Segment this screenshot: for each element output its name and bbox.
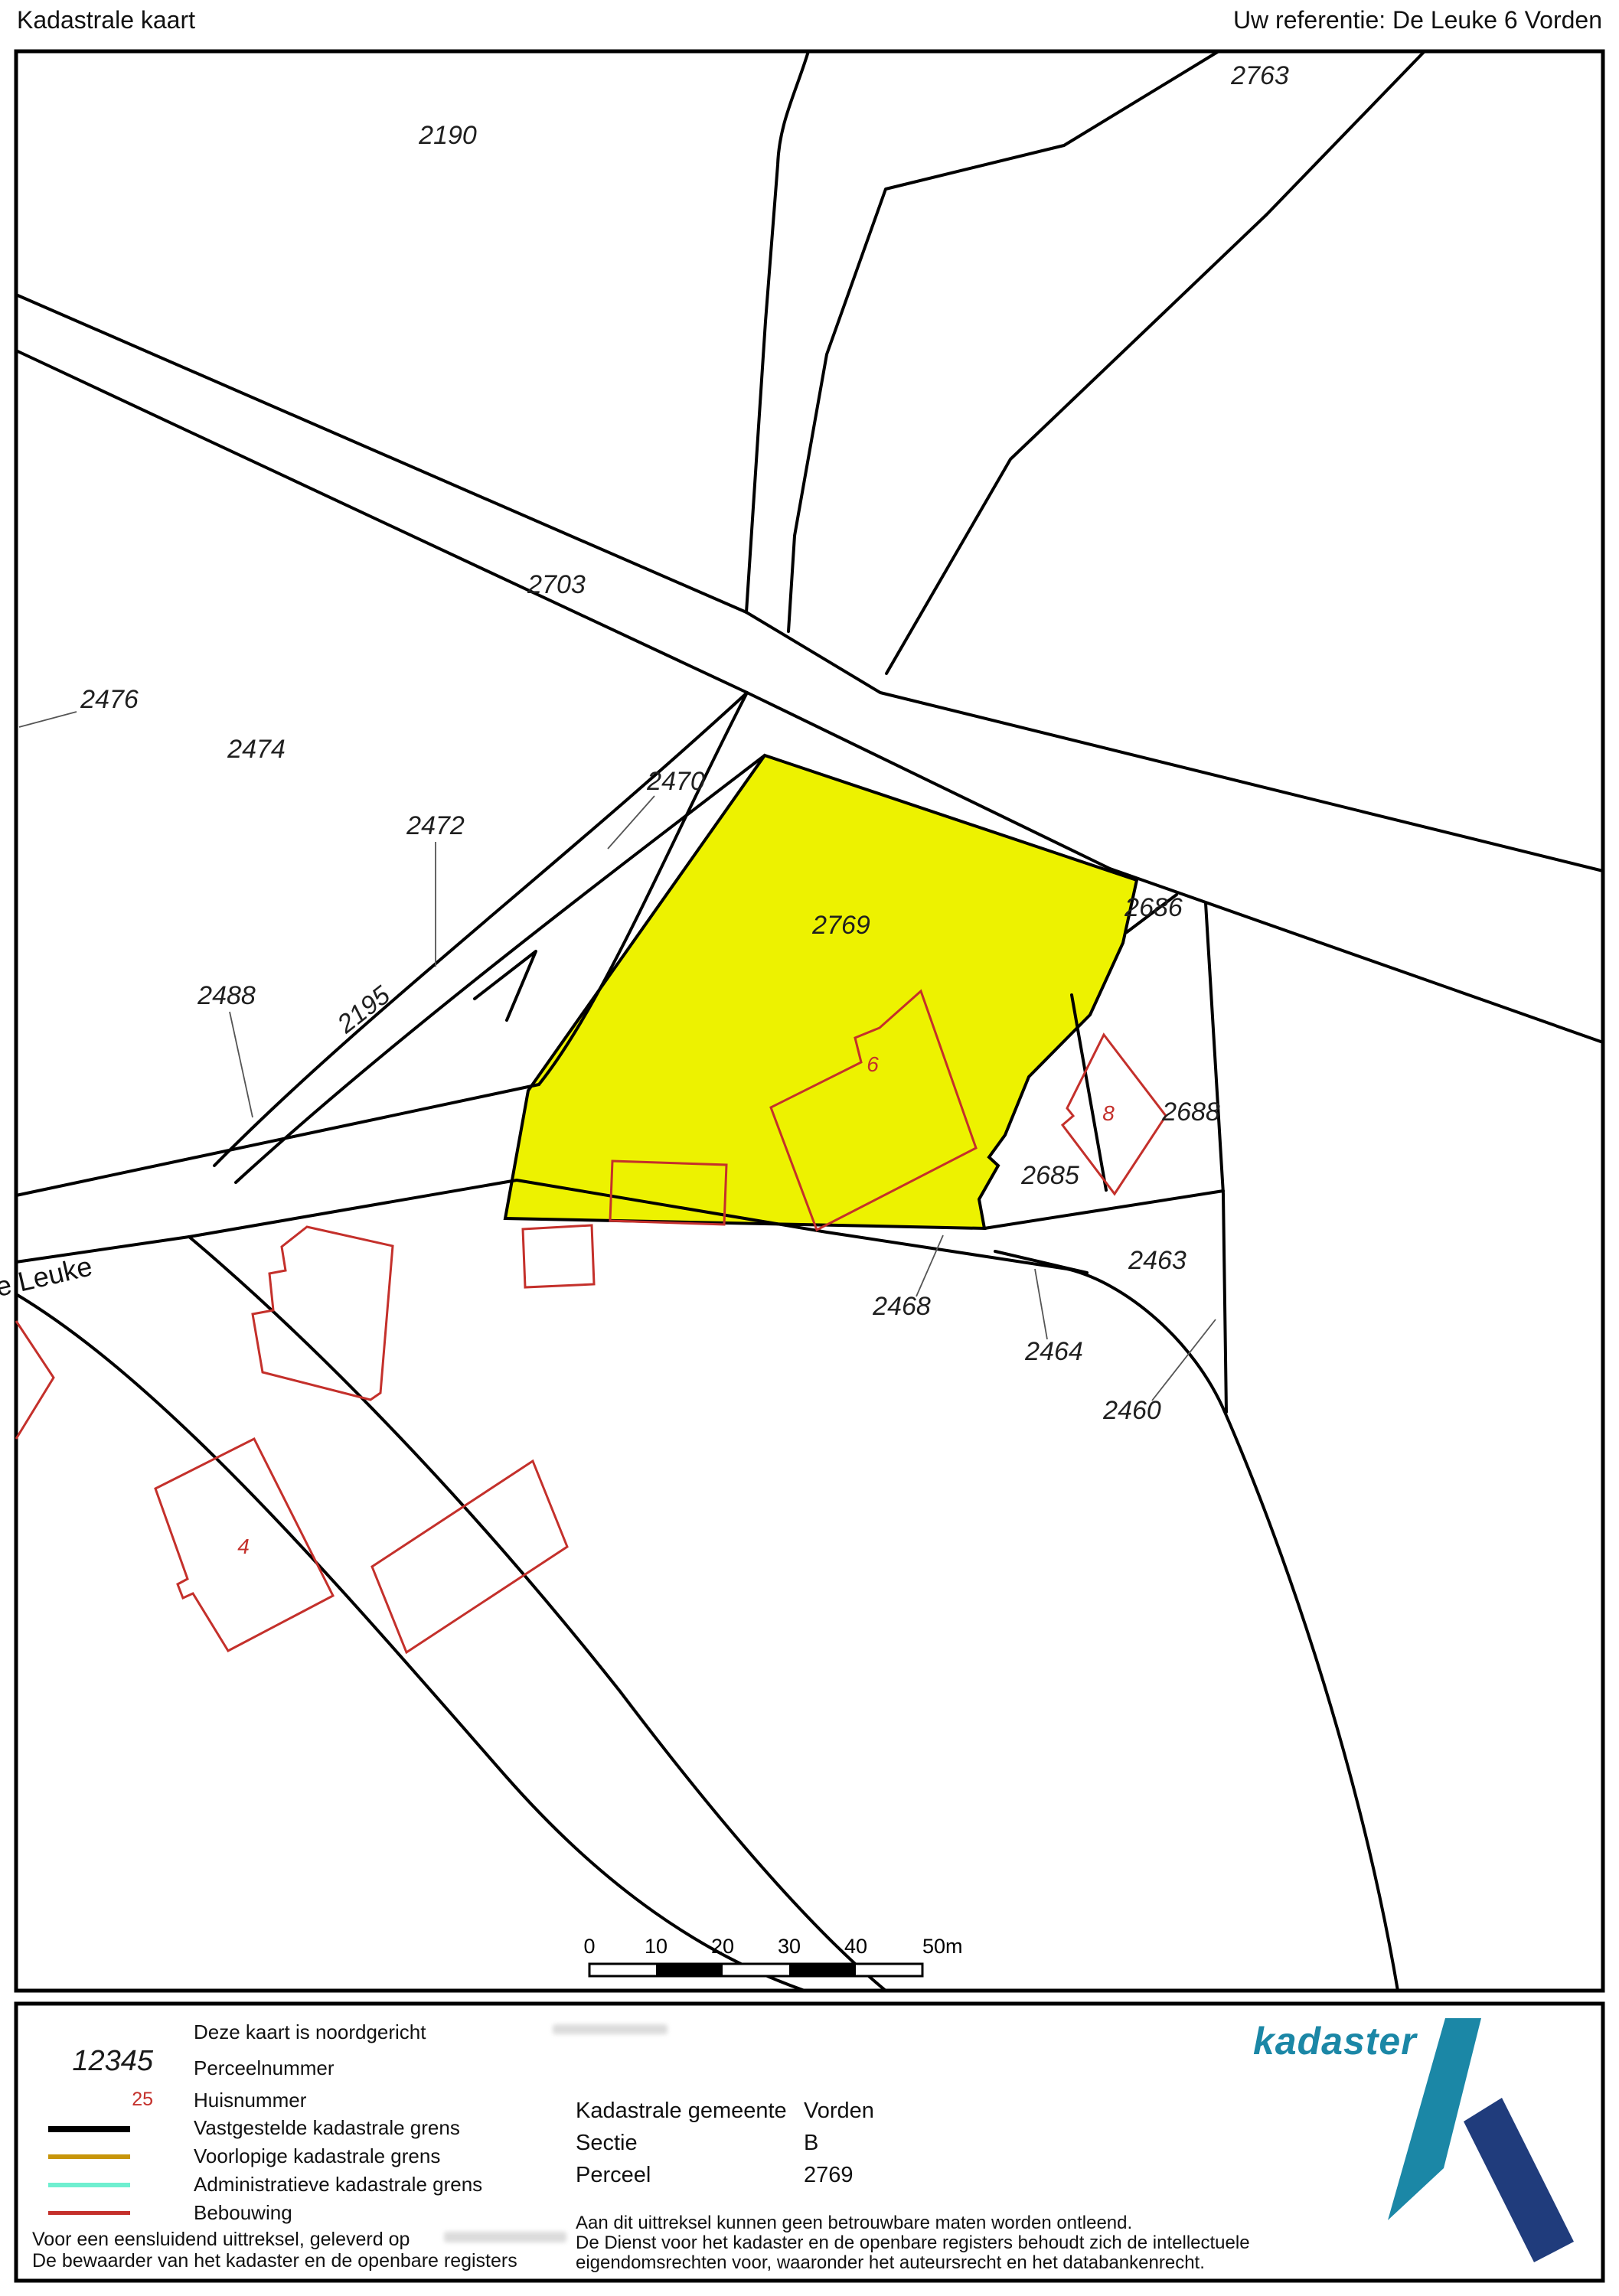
redacted-scale-smudge xyxy=(553,2024,668,2034)
info-label-gemeente: Kadastrale gemeente xyxy=(576,2099,787,2124)
house-number-6: 6 xyxy=(867,1052,879,1076)
parcel-label-2476: 2476 xyxy=(80,685,139,714)
scale-tick-20: 20 xyxy=(711,1935,734,1958)
disclaimer-line-3: eigendomsrechten voor, waaronder het aut… xyxy=(576,2252,1205,2274)
legend-label-bebouwing: Bebouwing xyxy=(194,2201,292,2225)
legend-symbol-perceelnummer: 12345 xyxy=(23,2045,153,2078)
redacted-date-smudge xyxy=(444,2232,566,2242)
cadastral-map: 2190276327032476247424702472248821952769… xyxy=(0,0,1619,2296)
scale-tick-40: 40 xyxy=(844,1935,867,1958)
footer-bewaarder-line: De bewaarder van het kadaster en de open… xyxy=(32,2250,517,2272)
legend-label-administratieve-grens: Administratieve kadastrale grens xyxy=(194,2173,482,2197)
scale-tick-30: 30 xyxy=(778,1935,801,1958)
parcel-label-2685: 2685 xyxy=(1020,1161,1079,1190)
legend-label-huisnummer: Huisnummer xyxy=(194,2089,306,2112)
kadaster-logo-text: kadaster xyxy=(1253,2019,1417,2063)
scale-bar xyxy=(589,1964,922,1976)
parcel-label-2460: 2460 xyxy=(1102,1396,1161,1425)
parcel-label-2703: 2703 xyxy=(527,570,586,599)
info-label-perceel: Perceel xyxy=(576,2163,651,2188)
info-value-sectie: B xyxy=(804,2131,818,2156)
disclaimer-line-2: De Dienst voor het kadaster en de openba… xyxy=(576,2232,1250,2254)
footer-eensluidend-line: Voor een eensluidend uittreksel, gelever… xyxy=(32,2229,410,2251)
legend-swatch-voorlopige-grens xyxy=(48,2154,130,2159)
legend-swatch-administratieve-grens xyxy=(48,2183,130,2187)
info-value-gemeente: Vorden xyxy=(804,2099,874,2124)
parcel-label-2488: 2488 xyxy=(197,981,256,1010)
disclaimer-line-1: Aan dit uittreksel kunnen geen betrouwba… xyxy=(576,2213,1132,2234)
legend-label-perceelnummer: Perceelnummer xyxy=(194,2056,335,2080)
parcel-label-2686: 2686 xyxy=(1124,893,1183,922)
scale-tick-50m: 50m xyxy=(922,1935,963,1958)
legend-label-vastgestelde-grens: Vastgestelde kadastrale grens xyxy=(194,2116,460,2140)
scale-tick-0: 0 xyxy=(583,1935,595,1958)
parcel-label-2474: 2474 xyxy=(227,735,286,764)
parcel-label-2470: 2470 xyxy=(646,767,705,796)
parcel-label-2468: 2468 xyxy=(872,1292,931,1321)
parcel-label-2464: 2464 xyxy=(1024,1337,1083,1366)
legend-swatch-vastgestelde-grens xyxy=(48,2126,130,2132)
legend-symbol-huisnummer: 25 xyxy=(23,2089,153,2111)
parcel-label-2688: 2688 xyxy=(1161,1097,1220,1127)
legend-label-voorlopige-grens: Voorlopige kadastrale grens xyxy=(194,2144,440,2168)
parcel-label-2763: 2763 xyxy=(1230,61,1289,90)
house-number-4: 4 xyxy=(237,1534,250,1558)
north-note: Deze kaart is noordgericht xyxy=(194,2020,426,2044)
legend-swatch-bebouwing xyxy=(48,2211,130,2215)
house-number-8: 8 xyxy=(1102,1101,1115,1125)
info-label-sectie: Sectie xyxy=(576,2131,638,2156)
parcel-label-2769: 2769 xyxy=(811,911,870,940)
cadastral-extract-page: Kadastrale kaart Uw referentie: De Leuke… xyxy=(0,0,1619,2296)
parcel-label-2472: 2472 xyxy=(406,811,465,840)
info-value-perceel: 2769 xyxy=(804,2163,854,2188)
parcel-label-2463: 2463 xyxy=(1128,1246,1187,1275)
parcel-label-2190: 2190 xyxy=(418,121,477,150)
scale-tick-10: 10 xyxy=(645,1935,668,1958)
